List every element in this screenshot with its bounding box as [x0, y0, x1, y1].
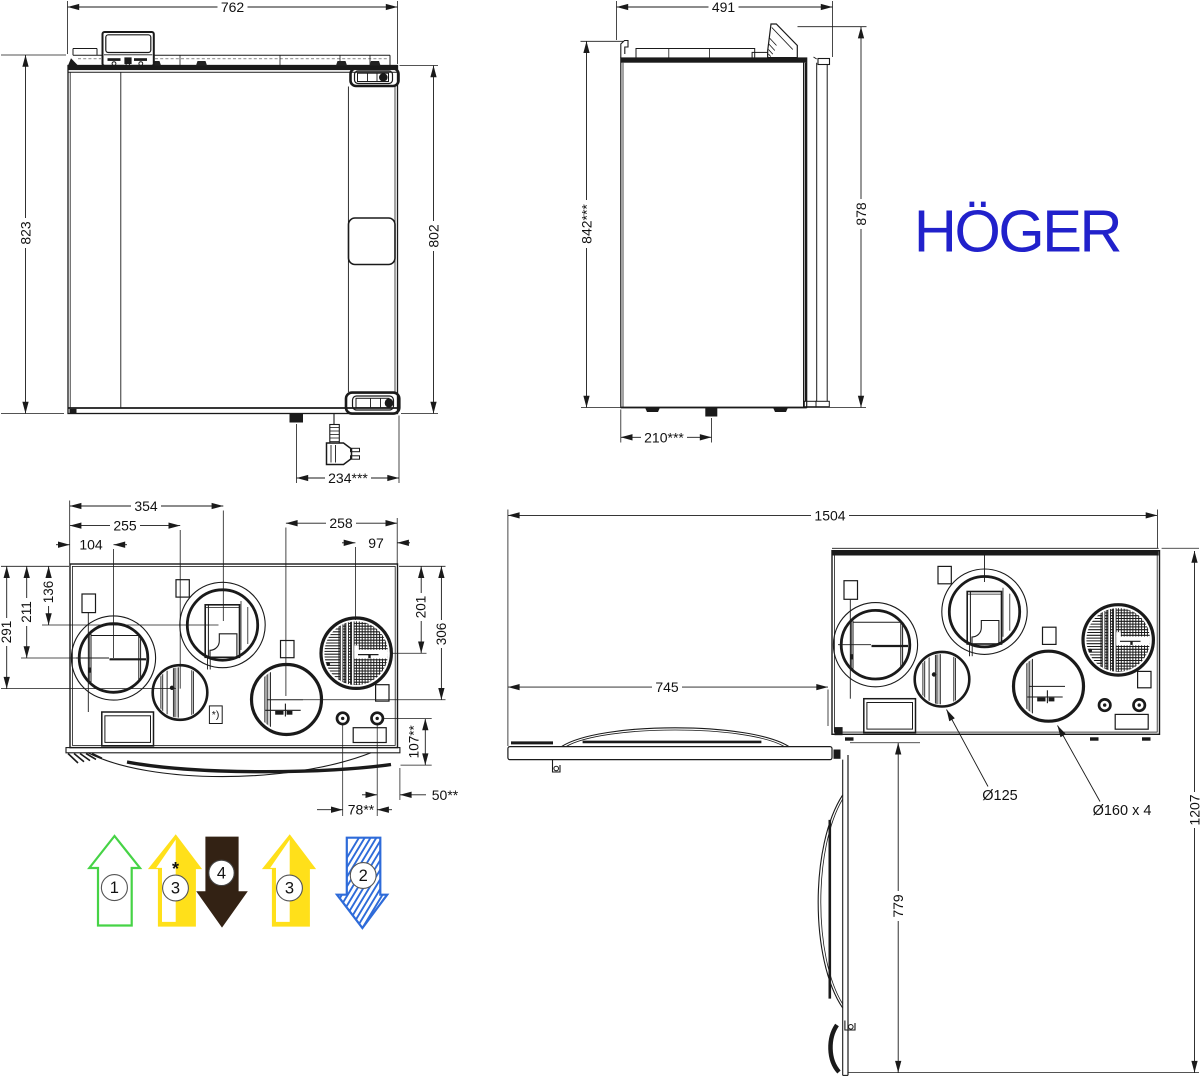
svg-text:491: 491: [712, 0, 736, 15]
svg-text:2: 2: [359, 867, 368, 885]
svg-text:3: 3: [285, 880, 294, 898]
svg-text:Ø160 x 4: Ø160 x 4: [1093, 803, 1152, 819]
svg-text:823: 823: [18, 221, 34, 245]
svg-text:878: 878: [853, 202, 869, 226]
svg-text:104: 104: [79, 537, 103, 553]
svg-text:745: 745: [655, 679, 679, 695]
svg-text:842***: 842***: [579, 204, 595, 244]
svg-text:201: 201: [414, 596, 429, 619]
svg-text:*: *: [172, 859, 179, 879]
svg-text:3: 3: [171, 880, 180, 898]
svg-text:354: 354: [134, 498, 158, 514]
svg-text:1: 1: [110, 879, 119, 897]
svg-text:762: 762: [221, 0, 245, 15]
svg-text:50**: 50**: [432, 787, 459, 803]
svg-text:210***: 210***: [644, 429, 684, 445]
svg-text:234***: 234***: [328, 470, 368, 486]
svg-text:291: 291: [0, 621, 14, 644]
svg-text:HÖGER: HÖGER: [914, 198, 1121, 265]
svg-text:255: 255: [113, 518, 137, 534]
svg-text:211: 211: [19, 601, 34, 623]
svg-text:136: 136: [41, 581, 56, 604]
svg-text:97: 97: [368, 535, 384, 551]
svg-text:258: 258: [329, 515, 353, 531]
svg-text:Ø125: Ø125: [982, 788, 1017, 804]
svg-text:802: 802: [426, 224, 442, 248]
svg-text:1504: 1504: [814, 507, 845, 523]
svg-text:107**: 107**: [407, 725, 422, 759]
svg-text:4: 4: [217, 864, 226, 882]
svg-text:306: 306: [434, 623, 449, 646]
svg-text:*): *): [212, 709, 220, 721]
svg-text:1207: 1207: [1187, 794, 1200, 825]
svg-text:779: 779: [890, 894, 906, 918]
svg-text:78**: 78**: [348, 802, 375, 818]
